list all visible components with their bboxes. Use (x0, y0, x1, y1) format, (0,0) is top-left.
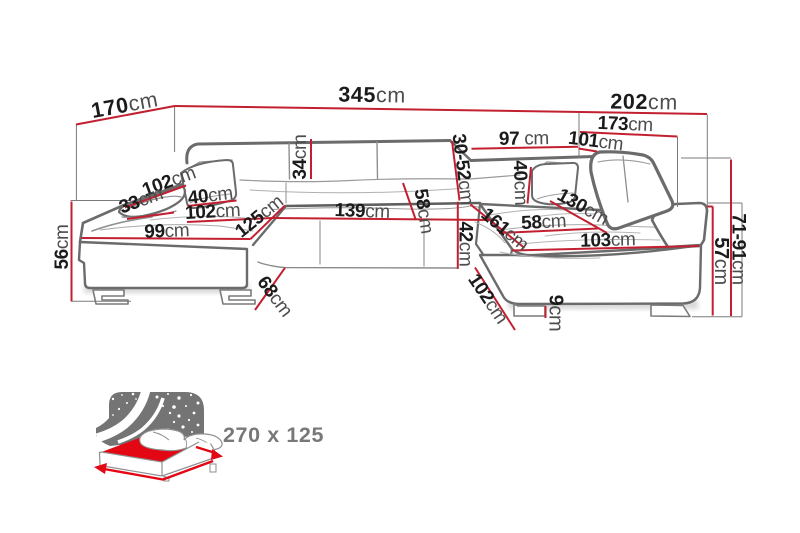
svg-text:270 x 125: 270 x 125 (223, 423, 324, 447)
svg-text:58cm: 58cm (521, 211, 567, 234)
svg-text:9cm: 9cm (545, 295, 567, 332)
svg-text:139cm: 139cm (334, 200, 390, 223)
svg-text:58cm: 58cm (410, 187, 438, 235)
svg-text:40cm: 40cm (509, 160, 532, 206)
svg-text:30-52cm: 30-52cm (448, 133, 478, 207)
svg-text:170cm: 170cm (89, 87, 160, 123)
svg-text:42cm: 42cm (455, 221, 476, 266)
svg-text:34cm: 34cm (290, 134, 311, 179)
svg-text:71-91cm: 71-91cm (728, 213, 749, 285)
svg-text:99cm: 99cm (144, 220, 190, 243)
svg-text:68cm: 68cm (252, 272, 296, 321)
svg-text:345cm: 345cm (338, 83, 406, 108)
svg-text:56cm: 56cm (52, 224, 73, 269)
svg-text:97 cm: 97 cm (499, 128, 549, 150)
svg-text:202cm: 202cm (610, 89, 678, 114)
svg-text:103cm: 103cm (580, 229, 636, 251)
svg-text:102cm: 102cm (185, 200, 241, 224)
